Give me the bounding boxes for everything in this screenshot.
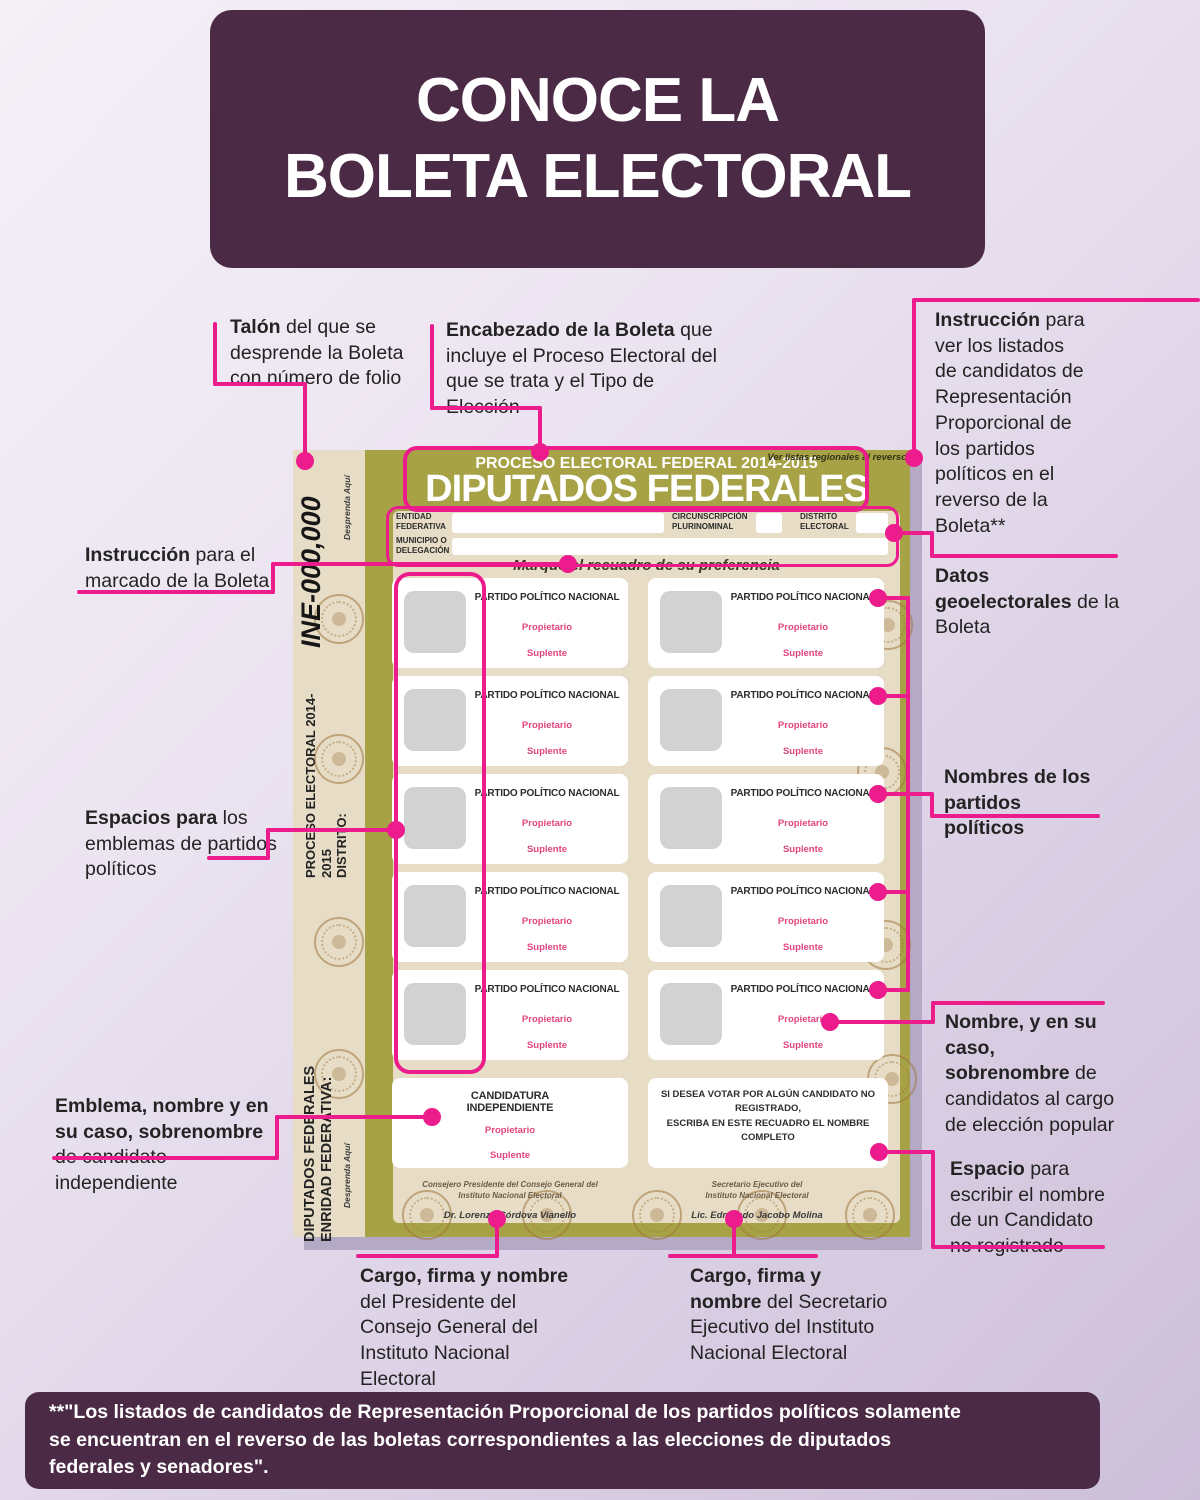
callout-espacios-emblemas-bold: Espacios para	[85, 807, 217, 829]
callout-encabezado-bold: Encabezado de la Boleta	[446, 319, 675, 341]
callout-dot	[869, 981, 887, 999]
party-box-text-area: PARTIDO POLÍTICO NACIONAL Propietario Su…	[470, 676, 624, 766]
connector-line	[828, 1020, 935, 1024]
callout-instruccion-marcado-bold: Instrucción	[85, 544, 190, 566]
party-box: PARTIDO POLÍTICO NACIONAL Propietario Su…	[648, 578, 884, 668]
callout-nombres-partidos-bold: Nombres de los partidos políticos	[944, 766, 1090, 839]
party-suplente-label: Suplente	[726, 942, 880, 953]
callout-dot	[885, 524, 903, 542]
callout-instruccion-listados-rest: para ver los listados de candidatos de R…	[935, 309, 1085, 537]
callout-dot	[821, 1013, 839, 1031]
footer-note-text: **"Los listados de candidatos de Represe…	[49, 1399, 980, 1482]
party-emblem-placeholder	[660, 885, 722, 947]
party-title: PARTIDO POLÍTICO NACIONAL	[726, 592, 880, 603]
connector-line	[213, 382, 307, 386]
party-emblem-placeholder	[660, 689, 722, 751]
party-box: PARTIDO POLÍTICO NACIONAL Propietario Su…	[648, 970, 884, 1060]
callout-talon-bold: Talón	[230, 316, 281, 338]
callout-instruccion-marcado: Instrucción para el marcado de la Boleta	[85, 543, 280, 594]
party-propietario-label: Propietario	[726, 818, 880, 829]
callout-datos-geoelectorales-bold: Datos geoelectorales	[935, 565, 1072, 613]
header-highlight-outline	[403, 446, 869, 512]
connector-line	[213, 322, 217, 386]
party-box-text-area: PARTIDO POLÍTICO NACIONAL Propietario Su…	[726, 872, 880, 962]
signature-left-name: Dr. Lorenzo Córdova Vianello	[420, 1210, 600, 1221]
connector-line	[266, 828, 270, 860]
party-propietario-label: Propietario	[470, 1014, 624, 1025]
party-propietario-label: Propietario	[726, 622, 880, 633]
callout-dot	[387, 821, 405, 839]
callout-instruccion-listados-bold: Instrucción	[935, 309, 1040, 331]
connector-line	[356, 1254, 499, 1258]
signature-left-role: Consejero Presidente del Consejo General…	[420, 1180, 600, 1202]
party-title: PARTIDO POLÍTICO NACIONAL	[726, 788, 880, 799]
party-box: PARTIDO POLÍTICO NACIONAL Propietario Su…	[648, 676, 884, 766]
party-propietario-label: Propietario	[470, 720, 624, 731]
party-propietario-label: Propietario	[470, 622, 624, 633]
callout-cargo-secretario: Cargo, firma y nombre del Secretario Eje…	[690, 1264, 890, 1367]
callout-nombres-partidos: Nombres de los partidos políticos	[944, 765, 1104, 842]
write-in-box: SI DESEA VOTAR POR ALGÚN CANDIDATO NO RE…	[648, 1078, 888, 1168]
connector-line	[668, 1254, 818, 1258]
independent-suplente: Suplente	[392, 1150, 628, 1161]
callout-dot	[870, 1143, 888, 1161]
party-title: PARTIDO POLÍTICO NACIONAL	[470, 592, 624, 603]
write-in-instruction: SI DESEA VOTAR POR ALGÚN CANDIDATO NO RE…	[648, 1078, 888, 1145]
party-propietario-label: Propietario	[726, 916, 880, 927]
party-propietario-label: Propietario	[470, 916, 624, 927]
party-suplente-label: Suplente	[470, 844, 624, 855]
connector-line	[931, 1245, 1105, 1249]
side-text-proceso-distrito: PROCESO ELECTORAL 2014-2015 DISTRITO:	[303, 688, 350, 878]
callout-espacio-no-registrado-bold: Espacio	[950, 1158, 1025, 1180]
party-suplente-label: Suplente	[726, 844, 880, 855]
party-suplente-label: Suplente	[726, 746, 880, 757]
party-box: PARTIDO POLÍTICO NACIONAL Propietario Su…	[648, 872, 884, 962]
side-text-diputados-entidad: DIPUTADOS FEDERALES ENRIDAD FEDERATIVA:	[302, 1042, 337, 1242]
callout-dot	[869, 883, 887, 901]
callout-dot	[423, 1108, 441, 1126]
connector-line	[77, 590, 275, 594]
callout-dot	[869, 589, 887, 607]
party-suplente-label: Suplente	[470, 942, 624, 953]
connector-line	[275, 1115, 279, 1160]
party-box-text-area: PARTIDO POLÍTICO NACIONAL Propietario Su…	[470, 970, 624, 1060]
connector-line	[275, 1115, 432, 1119]
party-box-text-area: PARTIDO POLÍTICO NACIONAL Propietario Su…	[726, 774, 880, 864]
party-title: PARTIDO POLÍTICO NACIONAL	[470, 886, 624, 897]
party-emblem-placeholder	[660, 787, 722, 849]
callout-datos-geoelectorales: Datos geoelectorales de la Boleta	[935, 564, 1125, 641]
party-suplente-label: Suplente	[726, 648, 880, 659]
callout-instruccion-listados: Instrucción para ver los listados de can…	[935, 308, 1090, 540]
party-column-right: PARTIDO POLÍTICO NACIONAL Propietario Su…	[648, 578, 884, 1060]
party-box-text-area: PARTIDO POLÍTICO NACIONAL Propietario Su…	[470, 578, 624, 668]
party-suplente-label: Suplente	[470, 1040, 624, 1051]
party-suplente-label: Suplente	[726, 1040, 880, 1051]
callout-dot	[531, 443, 549, 461]
callout-cargo-presidente-bold: Cargo, firma y nombre	[360, 1265, 568, 1287]
connector-line	[207, 856, 270, 860]
party-title: PARTIDO POLÍTICO NACIONAL	[470, 788, 624, 799]
party-emblem-placeholder	[660, 591, 722, 653]
connector-line	[912, 298, 1200, 302]
ine-seal-icon	[314, 917, 364, 967]
callout-cargo-presidente: Cargo, firma y nombre del Presidente del…	[360, 1264, 575, 1393]
party-propietario-label: Propietario	[726, 720, 880, 731]
party-suplente-label: Suplente	[470, 746, 624, 757]
party-box: PARTIDO POLÍTICO NACIONAL Propietario Su…	[648, 774, 884, 864]
callout-dot	[869, 785, 887, 803]
callout-dot	[559, 555, 577, 573]
party-suplente-label: Suplente	[470, 648, 624, 659]
connector-line	[931, 1001, 1105, 1005]
signature-right-role: Secretario Ejecutivo del Instituto Nacio…	[667, 1180, 847, 1202]
party-propietario-label: Propietario	[470, 818, 624, 829]
connector-line	[930, 814, 1100, 818]
callout-nombre-sobrenombre: Nombre, y en su caso, sobrenombre de can…	[945, 1010, 1115, 1139]
page-title-line2: BOLETA ELECTORAL	[284, 146, 911, 208]
callout-cargo-presidente-rest: del Presidente del Consejo General del I…	[360, 1291, 538, 1390]
connector-line	[930, 554, 1118, 558]
party-box-text-area: PARTIDO POLÍTICO NACIONAL Propietario Su…	[726, 578, 880, 668]
party-box-text-area: PARTIDO POLÍTICO NACIONAL Propietario Su…	[470, 774, 624, 864]
callout-emblema-independiente: Emblema, nombre y en su caso, sobrenombr…	[55, 1094, 280, 1197]
detach-note-top: Desprenda Aquí	[342, 470, 352, 540]
callout-espacios-emblemas: Espacios para los emblemas de partidos p…	[85, 806, 280, 883]
geo-fields-highlight-outline	[386, 506, 899, 567]
party-box-text-area: PARTIDO POLÍTICO NACIONAL Propietario Su…	[726, 970, 880, 1060]
party-title: PARTIDO POLÍTICO NACIONAL	[726, 690, 880, 701]
page-title-line1: CONOCE LA	[416, 70, 779, 132]
callout-dot	[905, 449, 923, 467]
callout-emblema-independiente-rest: de candidato independiente	[55, 1146, 178, 1194]
ballot-folio: INE-000,000	[296, 453, 327, 648]
connector-line	[430, 324, 434, 410]
connector-line	[430, 406, 542, 410]
ine-seal-icon	[845, 1190, 895, 1240]
party-title: PARTIDO POLÍTICO NACIONAL	[726, 984, 880, 995]
connector-line	[931, 1150, 935, 1249]
party-title: PARTIDO POLÍTICO NACIONAL	[726, 886, 880, 897]
callout-emblema-independiente-bold: Emblema, nombre y en su caso, sobrenombr…	[55, 1095, 268, 1143]
callout-dot	[869, 687, 887, 705]
party-box-text-area: PARTIDO POLÍTICO NACIONAL Propietario Su…	[470, 872, 624, 962]
connector-line	[303, 382, 307, 462]
infographic-root: CONOCE LA BOLETA ELECTORAL INE-000,000 D…	[0, 0, 1200, 1500]
party-box-text-area: PARTIDO POLÍTICO NACIONAL Propietario Su…	[726, 676, 880, 766]
title-card: CONOCE LA BOLETA ELECTORAL	[210, 10, 985, 268]
callout-dot	[296, 452, 314, 470]
emblems-highlight-outline	[394, 572, 486, 1074]
signature-right-name: Lic. Edmundo Jacobo Molina	[667, 1210, 847, 1221]
connector-line	[266, 828, 397, 832]
footer-note-card: **"Los listados de candidatos de Represe…	[25, 1392, 1100, 1489]
independent-propietario: Propietario	[392, 1125, 628, 1136]
party-title: PARTIDO POLÍTICO NACIONAL	[470, 690, 624, 701]
connector-line	[912, 298, 916, 460]
connector-line	[271, 562, 275, 594]
detach-note-bottom: Desprenda Aquí	[342, 1138, 352, 1208]
connector-line	[271, 562, 570, 566]
callout-talon: Talón del que se desprende la Boleta con…	[230, 315, 410, 392]
callout-dot	[488, 1210, 506, 1228]
party-emblem-placeholder	[660, 983, 722, 1045]
callout-dot	[725, 1210, 743, 1228]
connector-line	[52, 1156, 279, 1160]
party-title: PARTIDO POLÍTICO NACIONAL	[470, 984, 624, 995]
